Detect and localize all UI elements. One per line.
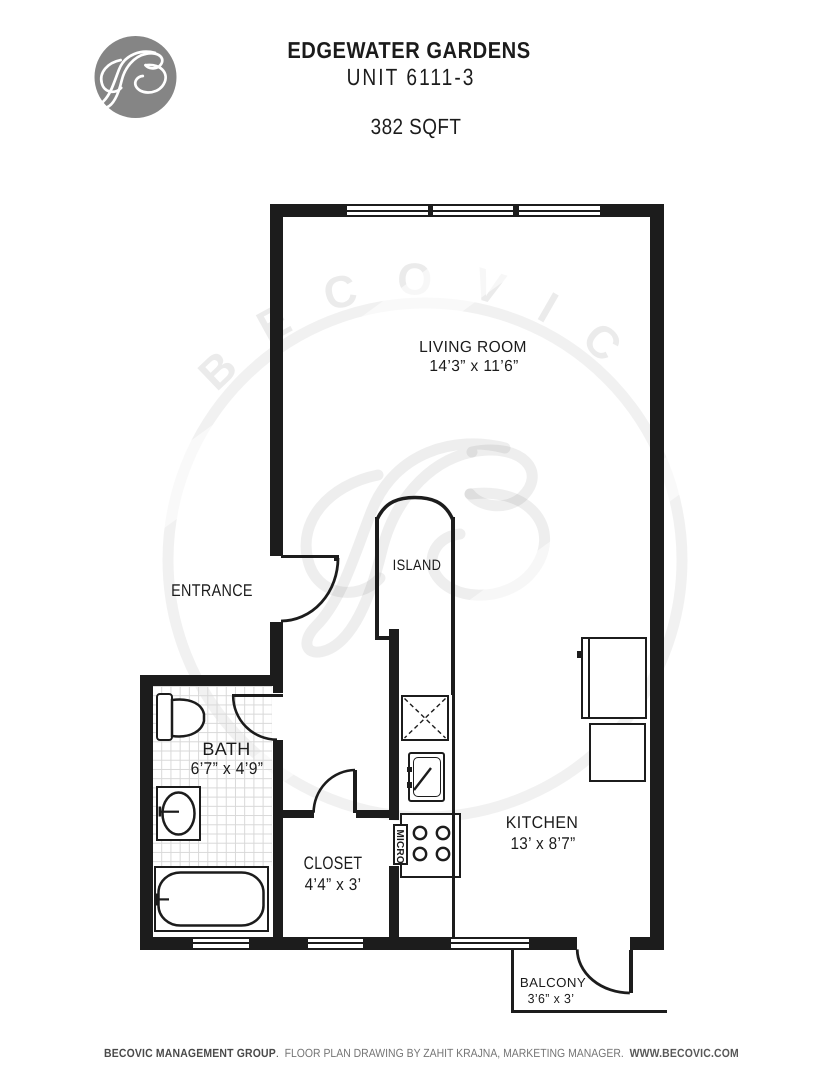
svg-text:MICRO: MICRO bbox=[394, 830, 405, 864]
